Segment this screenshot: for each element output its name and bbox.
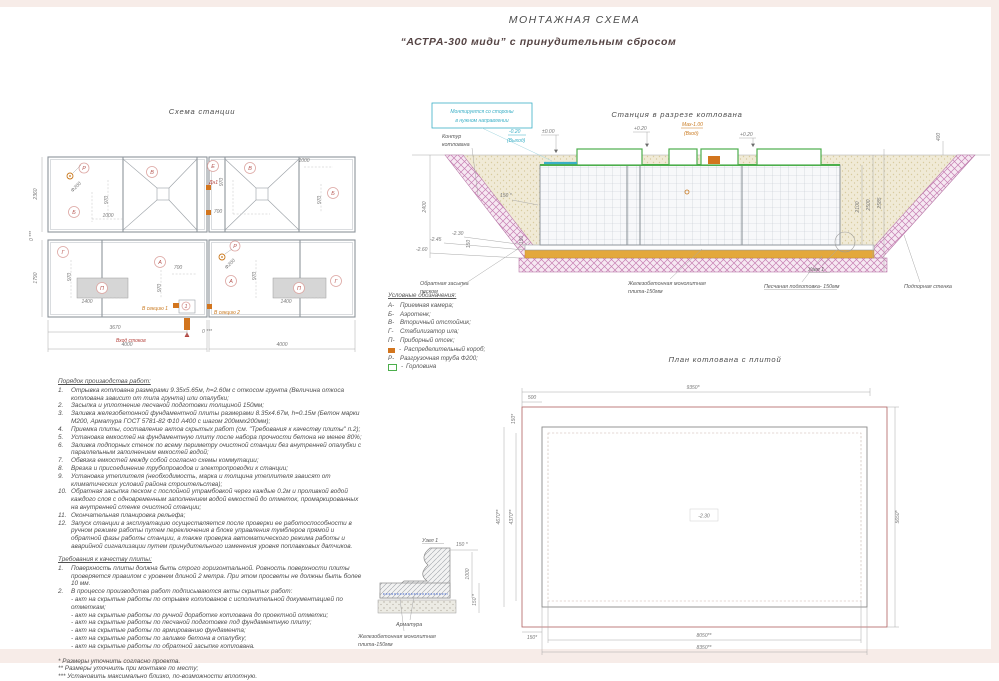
svg-text:2585: 2585: [877, 197, 883, 209]
node-detail-title: Узел 1: [421, 538, 438, 544]
station-plan-drawing: Схема станции Б В Р Е В Б: [30, 92, 370, 367]
drawing-title: МОНТАЖНАЯ СХЕМА: [150, 14, 999, 26]
svg-text:в нужном направлении: в нужном направлении: [455, 118, 508, 124]
svg-text:Железобетонная монолитная: Железобетонная монолитная: [627, 281, 706, 287]
procedure-item: 9.Установка утеплителя (необходимость, м…: [58, 473, 362, 489]
svg-text:500: 500: [528, 395, 537, 401]
act-item: - акт на скрытые работы по заливке бетон…: [71, 635, 362, 643]
procedure-item: 8.Врезка и присоединение трубопроводов и…: [58, 465, 362, 473]
svg-text:Б: Б: [72, 210, 76, 216]
svg-text:8350**: 8350**: [696, 645, 712, 651]
hidden-work-acts: - акт на скрытые работы по отрывке котло…: [71, 596, 362, 651]
svg-text:700: 700: [174, 265, 183, 271]
svg-text:Р: Р: [82, 166, 86, 172]
legend-item-a: А-Приемная камера;: [388, 302, 573, 311]
svg-text:150 *: 150 *: [456, 542, 469, 548]
svg-text:9350*: 9350*: [686, 385, 700, 391]
svg-text:Песчаная подготовка- 150мм: Песчаная подготовка- 150мм: [764, 284, 840, 290]
drawing-subtitle: “АСТРА-300 миди” с принудительным сбросо…: [78, 36, 999, 48]
svg-text:плита-150мм: плита-150мм: [628, 289, 663, 295]
svg-text:2360: 2360: [33, 188, 39, 200]
svg-text:Железобетонная монолитная: Железобетонная монолитная: [357, 634, 436, 640]
procedure-item: 11.Окончательная планировка рельефа;: [58, 512, 362, 520]
to-section2-label: В секцию 2: [214, 310, 240, 316]
svg-text:5650*: 5650*: [895, 509, 901, 523]
pit-plan-dimensions: 9350* 500 150* 5650* 4670** 4370** 150* …: [496, 385, 901, 655]
procedure-item: 4.Приемка плиты, составление актов скрыт…: [58, 426, 362, 434]
procedure-title: Порядок производства работ:: [58, 378, 362, 386]
neck-icon: [388, 364, 397, 371]
svg-text:4370**: 4370**: [509, 508, 515, 524]
procedure-item: 7.Обвязка емкостей между собой согласно …: [58, 457, 362, 465]
svg-text:А: А: [228, 279, 233, 285]
svg-text:1400: 1400: [280, 299, 291, 305]
svg-text:970: 970: [252, 272, 258, 281]
svg-text:2500: 2500: [866, 199, 872, 211]
svg-text:150*: 150*: [511, 413, 517, 424]
svg-text:Ф200: Ф200: [70, 181, 83, 194]
section-tank: [540, 149, 840, 245]
svg-text:+0.20: +0.20: [740, 132, 753, 138]
station-plan-dimensions: 2360 1790 0 *** 970 1000 970 1000 970 70…: [29, 157, 355, 352]
svg-text:0 ***: 0 ***: [29, 230, 35, 241]
svg-text:1400: 1400: [81, 299, 92, 305]
dn1-label: Дн1: [208, 180, 218, 186]
svg-text:150: 150: [466, 240, 472, 249]
quality-item: 1.Поверхность плиты должна быть строго г…: [58, 565, 362, 588]
section-note-box: Монтируется со стороны в нужном направле…: [432, 103, 552, 161]
svg-text:700: 700: [214, 209, 223, 215]
legend-item-g: Г-Стабилизатор ила;: [388, 328, 573, 337]
svg-text:Монтируется со стороны: Монтируется со стороны: [450, 109, 514, 115]
procedure-item: 10.Обратная засыпка песком с послойной у…: [58, 488, 362, 511]
svg-text:970: 970: [104, 196, 110, 205]
section-view-drawing: Станция в разрезе котлована Узел 1 Монти…: [412, 95, 994, 317]
svg-text:+0.20: +0.20: [634, 126, 647, 132]
footnote: *** Установить максимально близко, по-во…: [58, 673, 362, 681]
svg-text:(Вход): (Вход): [684, 131, 699, 137]
svg-text:4000: 4000: [276, 342, 287, 348]
svg-text:8050**: 8050**: [696, 633, 712, 639]
act-item: - акт на скрытые работы по обратной засы…: [71, 643, 362, 651]
inlet-label: Вход стоков: [116, 338, 146, 344]
section-view-title: Станция в разрезе котлована: [611, 110, 742, 119]
quality-title: Требования к качеству плиты:: [58, 556, 362, 564]
pit-bottom-level: -2.30: [698, 514, 710, 520]
procedure-item: 1.Отрывка котлована размерами 9.35х5.65м…: [58, 387, 362, 403]
station-plan-device-bays: [77, 278, 326, 313]
station-plan-hopper-2: [225, 159, 299, 230]
svg-text:П: П: [100, 286, 104, 292]
svg-text:2100: 2100: [855, 201, 861, 213]
svg-text:(Выход): (Выход): [507, 138, 526, 144]
svg-text:Е: Е: [211, 164, 215, 170]
quality-item: 2.В процессе производства работ подписыв…: [58, 588, 362, 596]
procedure-item: 12.Запуск станции в эксплуатацию осущест…: [58, 520, 362, 551]
svg-text:150: 150: [519, 236, 525, 245]
svg-text:Р: Р: [233, 244, 237, 250]
page-edge-top: [0, 0, 999, 7]
footnote: * Размеры уточнить согласно проекта.: [58, 658, 362, 666]
legend-title: Условные обозначения:: [388, 292, 573, 301]
procedure-item: 6.Заливка подпорных стенок по всему пери…: [58, 442, 362, 458]
pit-plan-outlines: -2.30: [522, 407, 887, 627]
svg-text:Мах-1.00: Мах-1.00: [682, 122, 703, 128]
procedure-item: 5.Установка емкостей на фундаментную пли…: [58, 434, 362, 442]
svg-text:1000: 1000: [298, 158, 309, 164]
svg-text:970: 970: [317, 196, 323, 205]
svg-text:П: П: [297, 286, 301, 292]
legend-item-v: В-Вторичный отстойник;: [388, 319, 573, 328]
svg-text:котлована: котлована: [442, 142, 470, 148]
svg-text:Арматура: Арматура: [395, 622, 422, 628]
svg-text:400: 400: [936, 133, 942, 142]
legend-item-b: Б-Аэротенк;: [388, 311, 573, 320]
station-plan-title: Схема станции: [169, 107, 236, 116]
svg-text:1: 1: [185, 304, 188, 310]
footnotes: * Размеры уточнить согласно проекта. ** …: [58, 658, 362, 681]
station-plan-annotations: Дн1 Вход стоков В секцию 1 В секцию 2: [116, 180, 240, 344]
svg-text:0 ***: 0 ***: [202, 329, 213, 335]
svg-text:150 *: 150 *: [500, 193, 513, 199]
svg-text:В: В: [150, 170, 154, 176]
svg-text:1000: 1000: [465, 568, 471, 579]
svg-text:-2.60: -2.60: [416, 247, 428, 253]
distribution-box-icon: [388, 348, 395, 353]
svg-text:2400: 2400: [422, 201, 428, 213]
svg-text:Подпорная стенка: Подпорная стенка: [904, 284, 952, 290]
pit-plan-title: План котлована с плитой: [669, 355, 782, 364]
svg-text:970: 970: [219, 178, 225, 187]
svg-text:Ф200: Ф200: [224, 258, 237, 271]
svg-text:-0.20: -0.20: [509, 129, 521, 135]
distribution-box: [708, 156, 720, 164]
footnote: ** Размеры уточнить при монтаже по месту…: [58, 665, 362, 673]
pit-plan-drawing: План котлована с плитой -2.30 9350* 500 …: [478, 348, 918, 660]
procedure-item: 3.Заливка железобетонной фундаментной пл…: [58, 410, 362, 426]
svg-text:В: В: [248, 166, 252, 172]
svg-text:970: 970: [67, 273, 73, 282]
svg-text:плита-150мм: плита-150мм: [358, 642, 393, 648]
act-item: - акт на скрытые работы по отрывке котло…: [71, 596, 362, 612]
act-item: - акт на скрытые работы по армированию ф…: [71, 627, 362, 635]
svg-text:Контур: Контур: [442, 134, 461, 140]
svg-text:-2.45: -2.45: [430, 237, 442, 243]
svg-text:970: 970: [157, 284, 163, 293]
node-detail-drawing: Узел 1 150 * 1000 150 * Арматура Железоб…: [352, 528, 512, 663]
svg-text:1000: 1000: [102, 213, 113, 219]
node-detail-section: [378, 548, 456, 613]
svg-text:150*: 150*: [527, 635, 538, 641]
svg-text:1790: 1790: [33, 272, 39, 283]
station-plan-hopper-1: [123, 159, 197, 230]
to-section1-label: В секцию 1: [142, 306, 168, 312]
svg-text:Б: Б: [331, 191, 335, 197]
svg-text:4670**: 4670**: [496, 508, 502, 524]
svg-text:А: А: [157, 260, 162, 266]
svg-text:150 *: 150 *: [472, 593, 478, 606]
svg-text:-2.30: -2.30: [452, 231, 464, 237]
work-procedure-text: Порядок производства работ: 1.Отрывка ко…: [58, 378, 362, 681]
svg-text:±0.00: ±0.00: [542, 129, 555, 135]
legend-item-p: П-Приборный отсек;: [388, 337, 573, 346]
svg-text:3670: 3670: [109, 325, 120, 331]
